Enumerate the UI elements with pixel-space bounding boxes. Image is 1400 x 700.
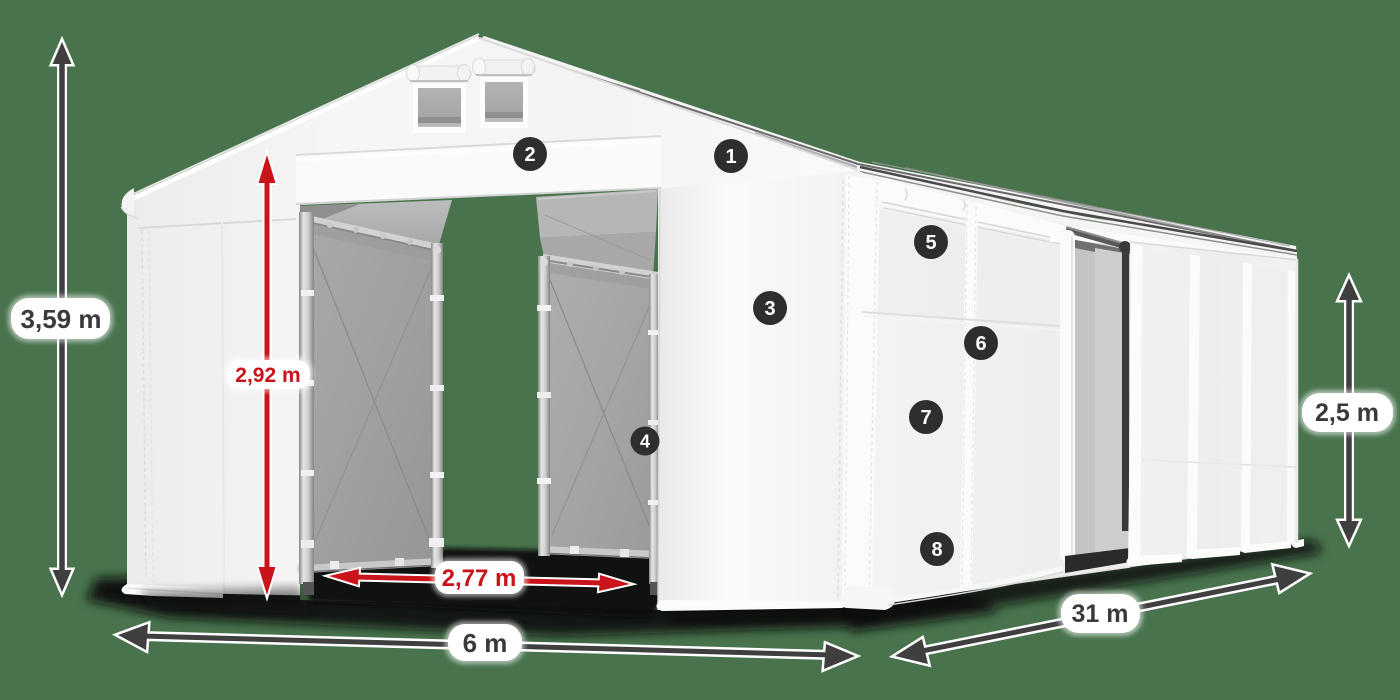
svg-text:1: 1 (725, 146, 736, 168)
svg-text:5: 5 (925, 232, 936, 254)
svg-text:7: 7 (920, 407, 931, 429)
svg-text:31 m: 31 m (1072, 600, 1129, 628)
svg-text:3: 3 (764, 298, 775, 320)
svg-text:8: 8 (931, 539, 942, 561)
svg-text:3,59 m: 3,59 m (21, 304, 102, 334)
svg-text:2,92 m: 2,92 m (235, 364, 300, 387)
svg-text:6: 6 (975, 333, 986, 355)
svg-text:2,5 m: 2,5 m (1315, 399, 1379, 427)
svg-text:4: 4 (640, 432, 650, 452)
svg-text:2: 2 (524, 144, 535, 166)
svg-text:6 m: 6 m (463, 628, 508, 658)
svg-text:2,77 m: 2,77 m (442, 565, 517, 592)
